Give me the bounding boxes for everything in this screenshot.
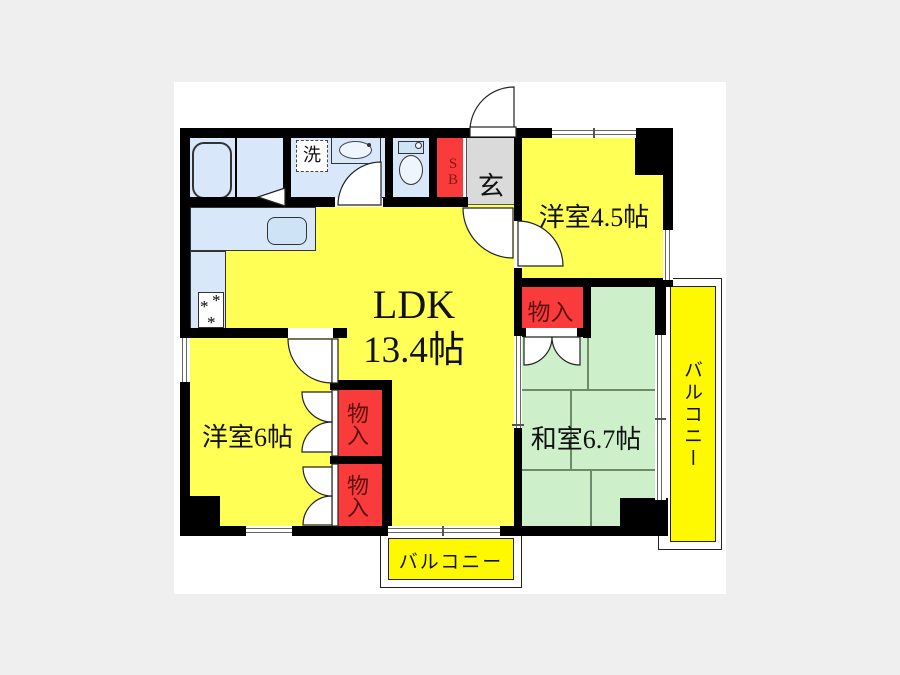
door-leaf-entrance: [470, 127, 516, 137]
western6-label: 洋室6帖: [185, 417, 310, 454]
balcony-bottom-label: バルコニー: [388, 547, 514, 574]
ldk-name: LDK: [318, 282, 510, 328]
door-arc-hall-ldk: [463, 208, 513, 258]
balcony-right-label: バルコニー: [679, 325, 705, 505]
window-handle-tick: [593, 128, 595, 138]
ldk-label: LDK 13.4帖: [318, 282, 510, 374]
western45-label: 洋室4.5帖: [518, 197, 670, 234]
door-arc-washroom: [338, 162, 381, 205]
closet3-door-arc-right: [552, 337, 580, 365]
ldk-size: 13.4帖: [318, 328, 510, 374]
bathroom-folding-door: [258, 188, 285, 206]
stove-burner-icon: *: [207, 313, 216, 332]
closet1-front-track: [332, 390, 338, 456]
floorplan-canvas: 洗: [0, 0, 900, 675]
door-arc-entrance: [470, 87, 514, 131]
japanese-room-label: 和室6.7帖: [515, 419, 657, 456]
closet3-door-arc-left: [524, 337, 552, 365]
stove-burner-icon: *: [212, 291, 221, 310]
closet2-door-arc-lower: [303, 496, 332, 525]
window-handle-tick: [442, 526, 444, 536]
entrance-label: 玄: [466, 166, 516, 203]
closet2-front-track: [332, 464, 338, 526]
closet3-label: 物入: [518, 293, 583, 327]
closet2-door-arc-upper: [303, 467, 332, 496]
shoe-box-label: SB: [441, 143, 461, 201]
closet2-label: 物入: [348, 468, 372, 524]
closet1-label: 物入: [348, 394, 372, 454]
